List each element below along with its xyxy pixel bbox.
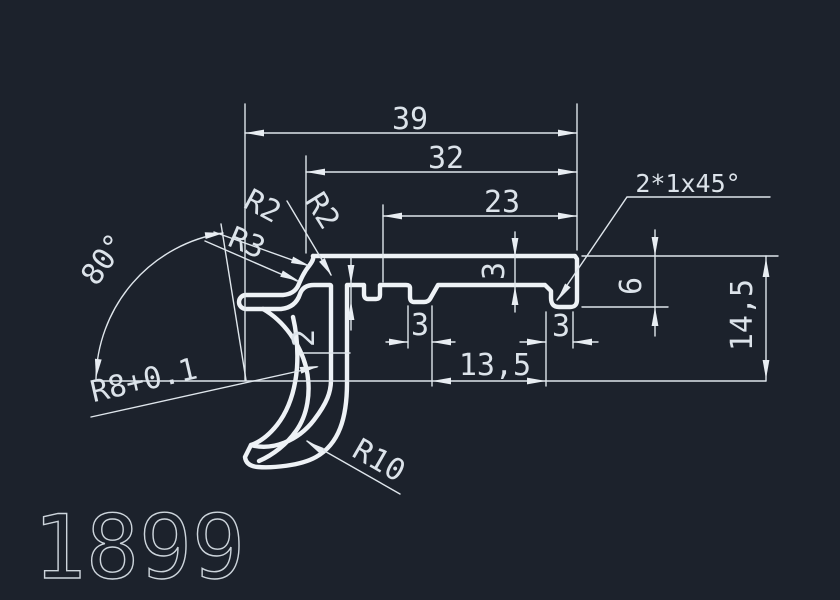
arrow-32-right [558,169,577,176]
dim-text-32: 32 [428,141,464,176]
arrow-23-left [383,213,402,220]
cad-drawing-canvas: 39 32 23 2*1x45° 3 2 3 3 13,5 6 14,5 80°… [0,0,840,600]
arrow-r2-b [319,258,335,278]
dim-text-rib-3: 3 [411,308,429,343]
arrow-6-top [652,237,659,256]
dim-text-6: 6 [614,277,649,295]
radius-text-r10: R10 [347,432,411,489]
arrow-23-right [558,213,577,220]
part-number: 1899 [33,496,245,599]
arrow-145-bottom [763,360,770,379]
arrow-rib3-left [389,339,408,346]
radius-text-r3: R3 [223,220,270,266]
arrow-r8 [300,363,320,374]
angle-text-80: 80° [74,227,134,291]
dim-text-39: 39 [392,102,428,137]
dim-text-2: 2 [287,329,322,347]
arrow-39-right [558,130,577,137]
dim-text-hook-3: 3 [552,309,570,344]
arrow-plate3-bottom [512,286,519,305]
dim-text-plate-3: 3 [477,262,512,280]
arrow-39-left [245,130,264,137]
arrow-6-bottom [652,307,659,326]
radius-text-r8: R8+0.1 [87,352,200,410]
arrow-32-left [306,169,325,176]
dim-text-23: 23 [484,185,520,220]
dim-text-13-5: 13,5 [459,348,531,383]
arrow-135-left [432,378,451,385]
arrow-hook3-right [573,339,592,346]
arrow-2-top [348,265,355,284]
arrow-r3 [280,270,300,284]
arrow-hook3-left [527,339,546,346]
arrow-145-top [763,258,770,277]
cad-drawing: 39 32 23 2*1x45° 3 2 3 3 13,5 6 14,5 80°… [0,0,840,600]
dim-text-14-5: 14,5 [725,279,760,351]
chamfer-note-text: 2*1x45° [635,169,740,198]
radius-text-r2-b: R2 [298,186,347,235]
arrow-rib3-right [432,339,451,346]
